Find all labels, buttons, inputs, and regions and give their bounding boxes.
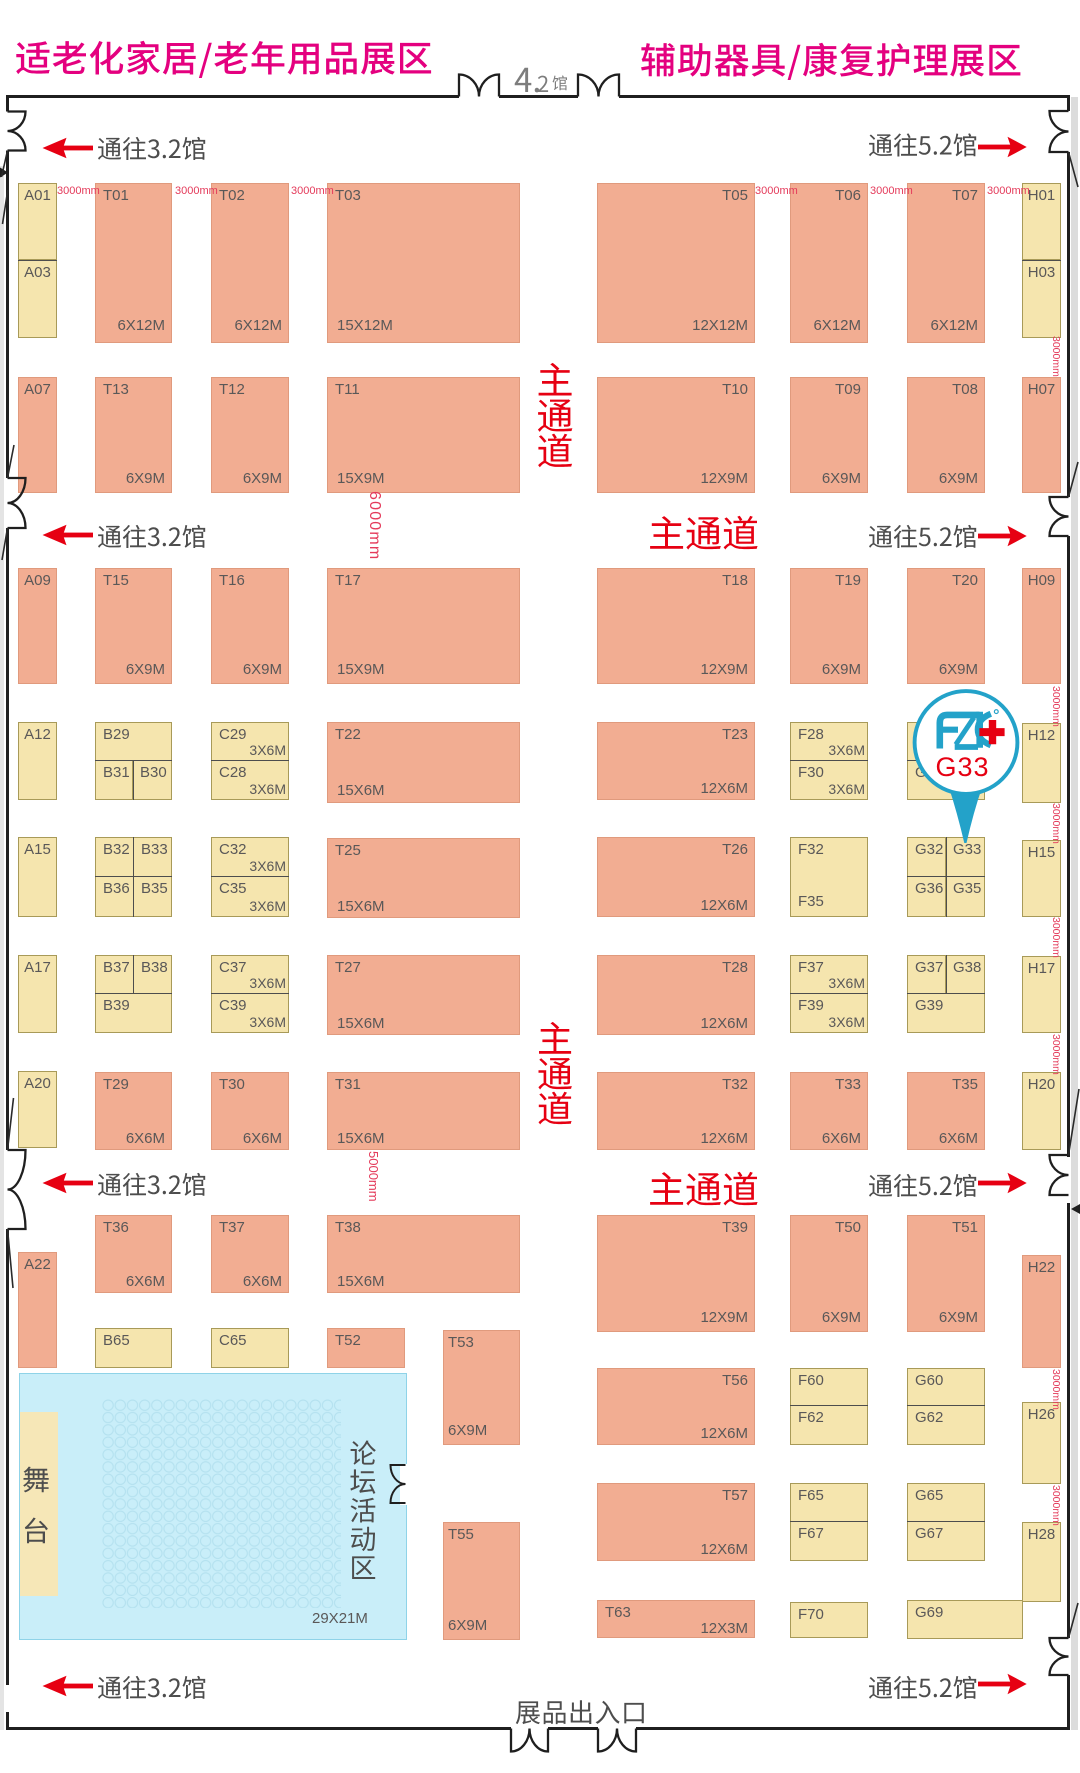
svg-text:G33: G33 [935, 752, 989, 782]
